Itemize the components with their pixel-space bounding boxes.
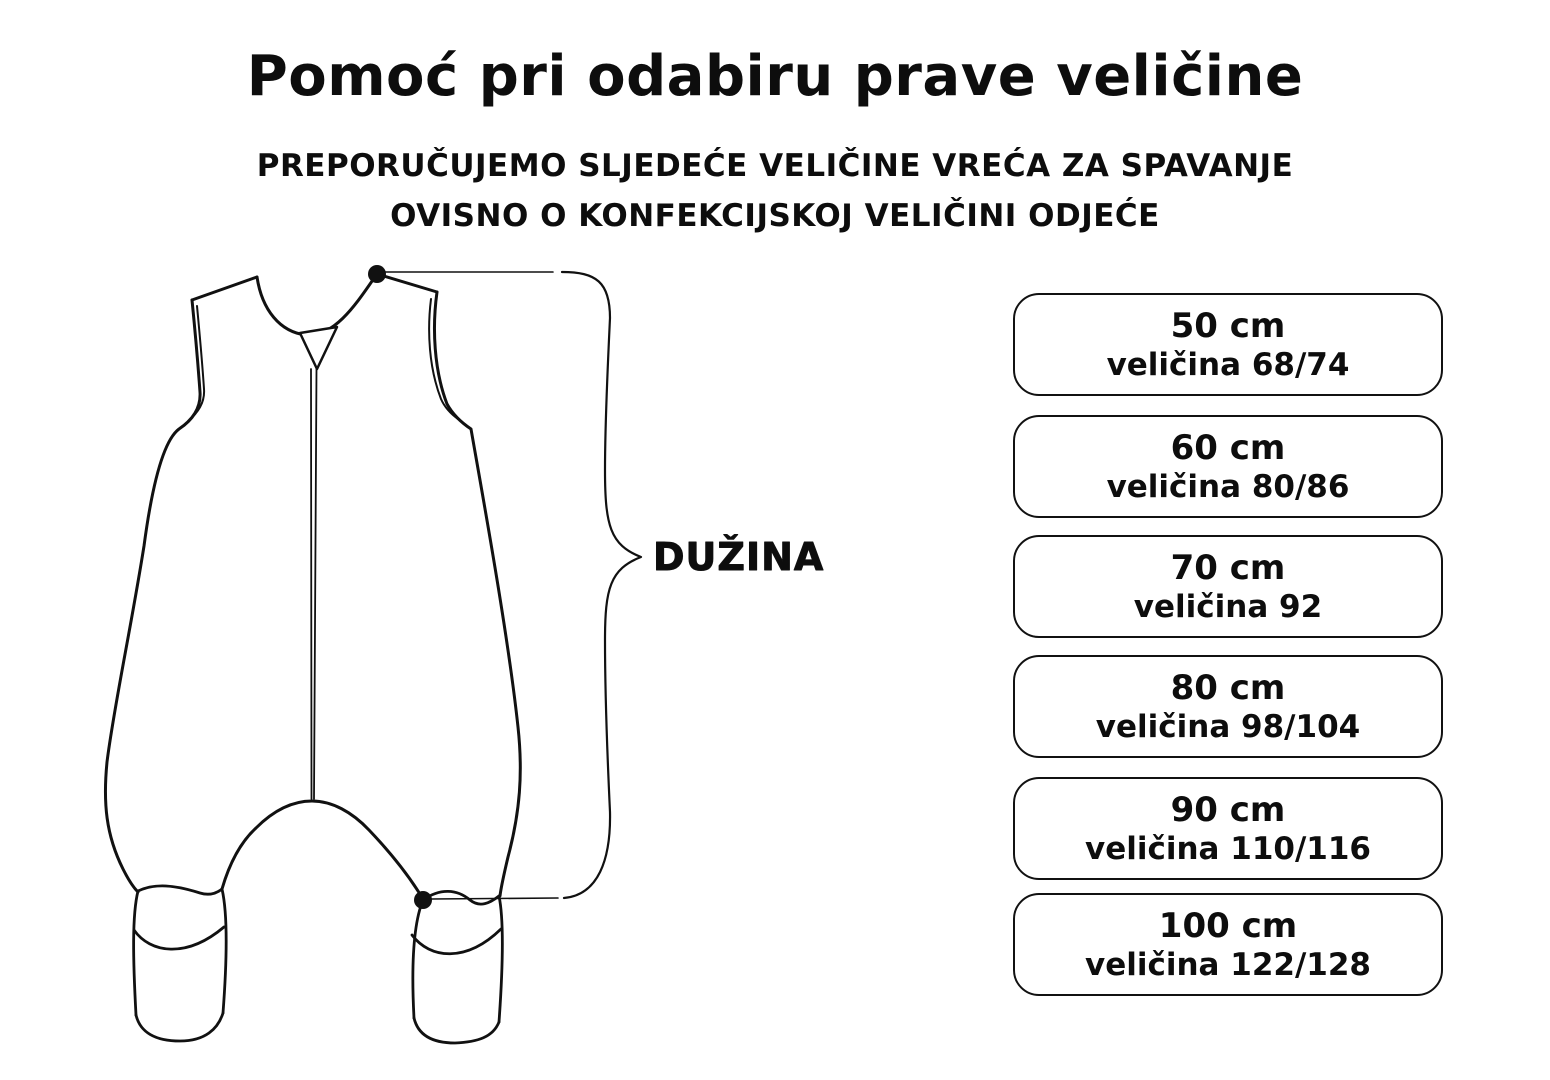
size-card-90: 90 cm veličina 110/116 bbox=[1013, 777, 1443, 880]
size-length: 60 cm bbox=[1171, 431, 1286, 465]
size-clothing: veličina 92 bbox=[1134, 592, 1322, 623]
size-length: 80 cm bbox=[1171, 671, 1286, 705]
size-length: 70 cm bbox=[1171, 551, 1286, 585]
size-length: 100 cm bbox=[1159, 909, 1297, 943]
size-clothing: veličina 110/116 bbox=[1085, 834, 1371, 865]
size-clothing: veličina 98/104 bbox=[1096, 712, 1360, 743]
size-card-70: 70 cm veličina 92 bbox=[1013, 535, 1443, 638]
size-length: 90 cm bbox=[1171, 793, 1286, 827]
sizing-guide-page: Pomoć pri odabiru prave veličine PREPORU… bbox=[0, 0, 1550, 1080]
size-clothing: veličina 80/86 bbox=[1107, 472, 1350, 503]
size-table: 50 cm veličina 68/74 60 cm veličina 80/8… bbox=[0, 0, 1550, 1080]
size-card-60: 60 cm veličina 80/86 bbox=[1013, 415, 1443, 518]
size-card-50: 50 cm veličina 68/74 bbox=[1013, 293, 1443, 396]
size-length: 50 cm bbox=[1171, 309, 1286, 343]
size-card-80: 80 cm veličina 98/104 bbox=[1013, 655, 1443, 758]
size-clothing: veličina 68/74 bbox=[1107, 350, 1350, 381]
size-card-100: 100 cm veličina 122/128 bbox=[1013, 893, 1443, 996]
size-clothing: veličina 122/128 bbox=[1085, 950, 1371, 981]
